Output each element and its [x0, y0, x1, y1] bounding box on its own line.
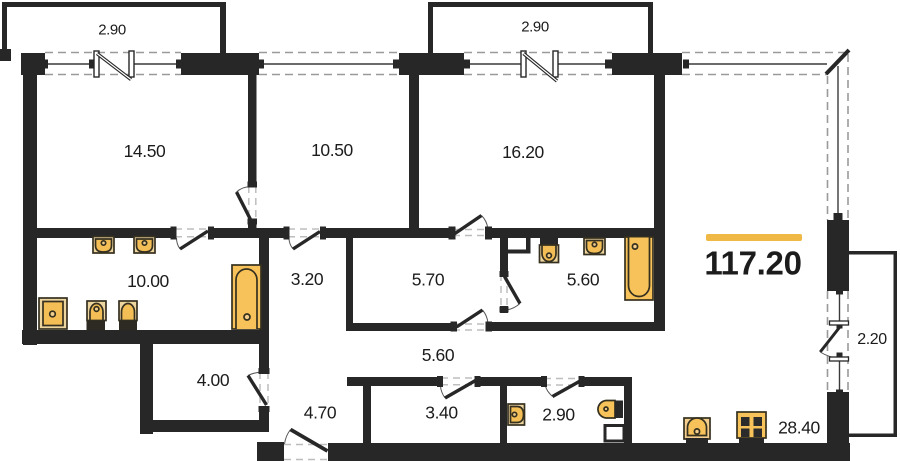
svg-text:2.90: 2.90 — [542, 405, 575, 425]
svg-text:28.40: 28.40 — [778, 418, 820, 438]
svg-text:10.00: 10.00 — [127, 271, 169, 291]
svg-text:14.50: 14.50 — [124, 141, 166, 161]
svg-text:2.90: 2.90 — [98, 22, 126, 39]
svg-text:117.20: 117.20 — [704, 245, 801, 282]
svg-text:4.00: 4.00 — [197, 370, 230, 390]
svg-text:2.90: 2.90 — [521, 19, 549, 36]
svg-text:2.20: 2.20 — [857, 331, 887, 348]
svg-text:3.40: 3.40 — [425, 403, 458, 423]
svg-text:5.70: 5.70 — [412, 270, 445, 290]
svg-text:4.70: 4.70 — [304, 403, 337, 423]
svg-text:3.20: 3.20 — [291, 269, 324, 289]
svg-text:5.60: 5.60 — [567, 270, 600, 290]
svg-text:5.60: 5.60 — [422, 345, 455, 365]
svg-text:16.20: 16.20 — [502, 142, 544, 162]
svg-text:10.50: 10.50 — [311, 140, 353, 160]
